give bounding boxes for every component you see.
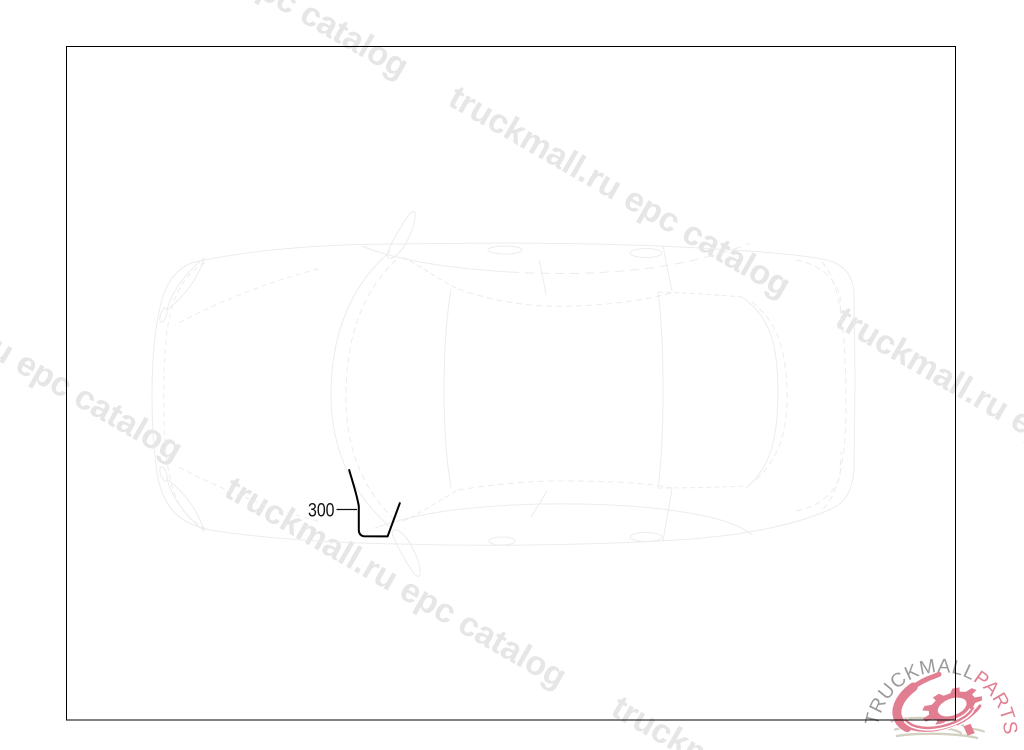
svg-text:truckmall.ru epc catalog: truckmall.ru epc catalog	[60, 0, 415, 86]
svg-text:truckmall.ru epc catalog: truckmall.ru epc catalog	[0, 243, 189, 470]
svg-text:truckmall.ru epc catalog: truckmall.ru epc catalog	[218, 469, 573, 696]
svg-text:300: 300	[308, 500, 335, 522]
svg-text:truckmall.ru epc catalog: truckmall.ru epc catalog	[829, 299, 1024, 526]
